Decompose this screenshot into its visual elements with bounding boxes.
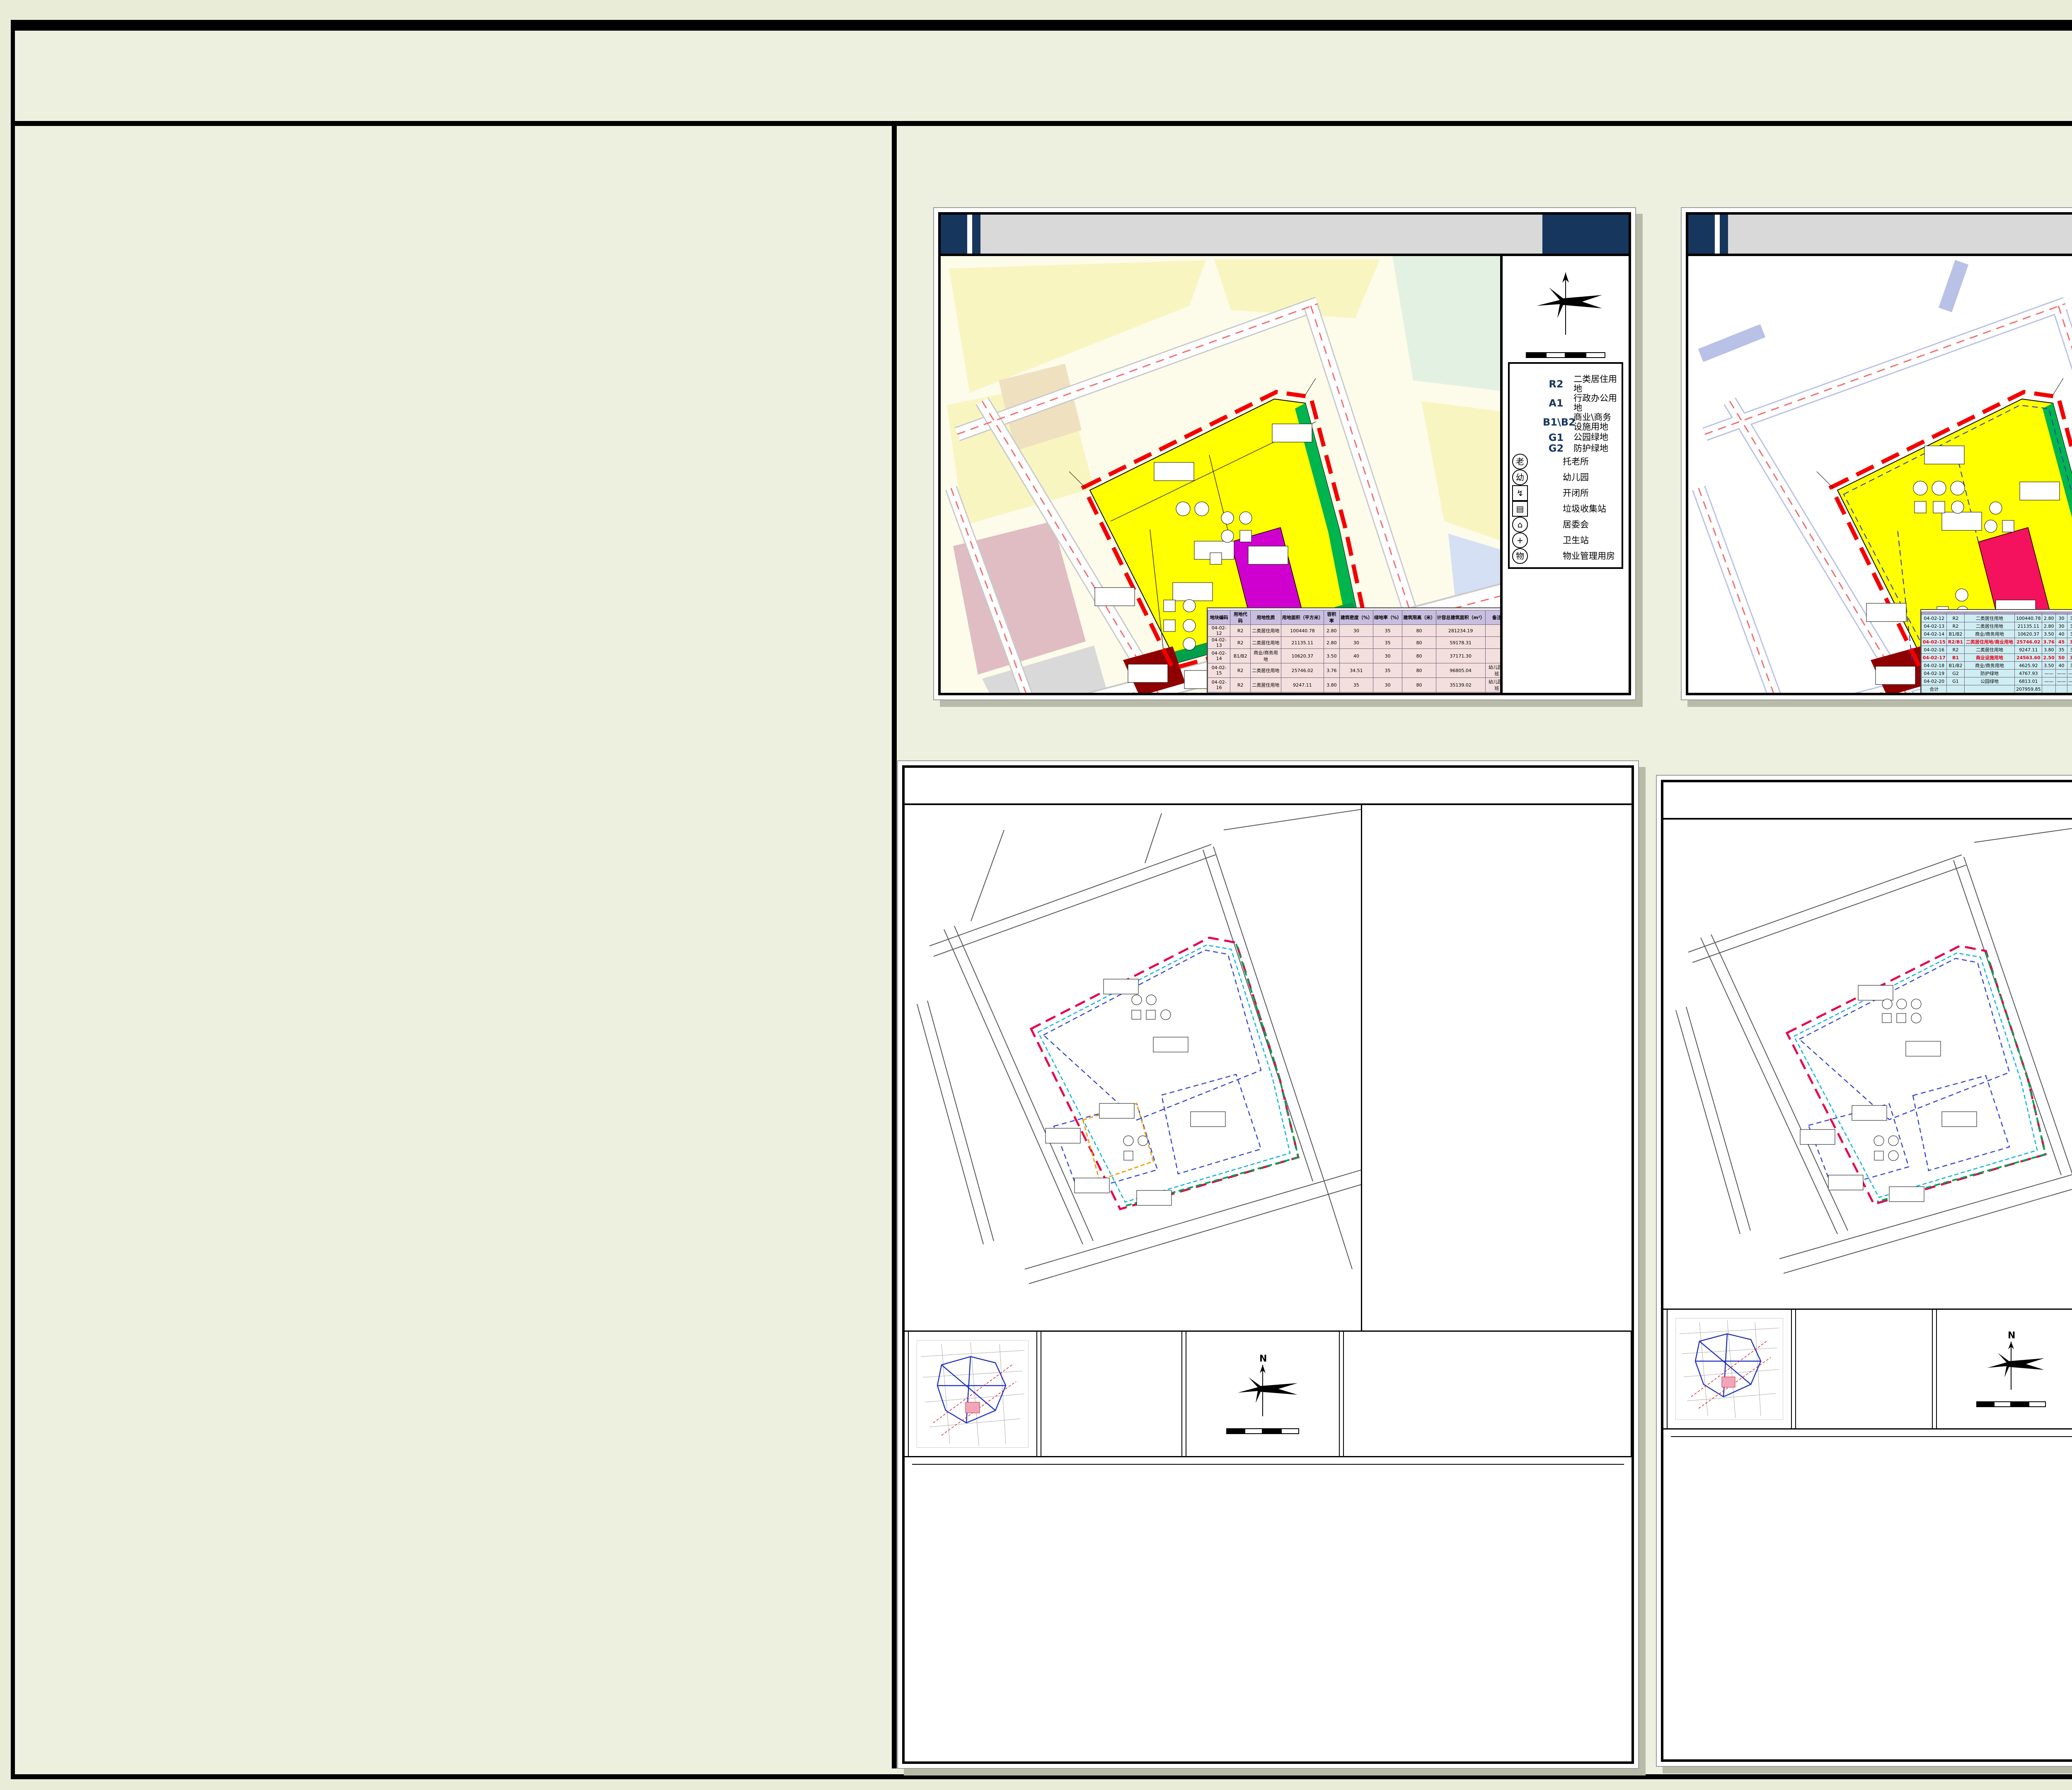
- sheet-before-notes: [905, 1461, 1631, 1468]
- legend-item: R2二类居住用地: [1512, 375, 1619, 394]
- code-cell: [1041, 1332, 1182, 1456]
- svg-text:N: N: [1259, 1354, 1267, 1364]
- legend-item: ⌂居委会: [1512, 517, 1619, 532]
- sheet-before-legend: [1344, 1332, 1631, 1456]
- legend-item: 幼幼儿园: [1512, 469, 1619, 485]
- title-divider: [11, 121, 2072, 126]
- land-use-map-after: 04-02-12R2二类居住用地100440.782.8030358028123…: [1688, 256, 2072, 693]
- location-minimap: [1668, 1310, 1792, 1428]
- compass-icon: [1526, 260, 1605, 343]
- north-scale-label: [1182, 1332, 1186, 1456]
- column-header: 建筑密度（%）: [1339, 610, 1373, 625]
- map-after-titlebar: [1688, 215, 2072, 256]
- legend-item: G1公园绿地: [1512, 432, 1619, 443]
- svg-text:N: N: [2008, 1331, 2015, 1341]
- management-sheet-after-panel: N: [1656, 775, 2072, 1767]
- legend-swatch: 物: [1512, 548, 1528, 564]
- column-header: 建筑限高（米）: [1402, 610, 1436, 625]
- land-use-map-before: 地块编码用地代码用地性质用地面积（平方米）容积率建筑密度（%）绿地率（%）建筑限…: [941, 256, 1500, 693]
- table-row: 04-02-17B1商业设施用地24563.602.5050306061409.…: [1922, 654, 2072, 662]
- legend-item: G2防护绿地: [1512, 443, 1619, 454]
- legend-swatch: 老: [1512, 454, 1528, 469]
- table-row: 04-02-12R2二类居住用地100440.782.8030358028123…: [1208, 625, 1501, 637]
- management-sheet-before-panel: N: [897, 760, 1639, 1769]
- legend-item: B1\B2商业\商务设施用地: [1512, 413, 1619, 432]
- table-row: 04-02-16R2二类居住用地9247.113.8035308035139.0…: [1208, 678, 1501, 692]
- location-map-label: [1663, 1310, 1668, 1428]
- legend-swatch: ⌂: [1512, 517, 1528, 532]
- legend-swatch: ↯: [1512, 485, 1528, 501]
- legend-item: 物物业管理用房: [1512, 548, 1619, 564]
- compass-icon: N: [1968, 1331, 2055, 1397]
- after-indicator-table: 04-02-12R2二类居住用地100440.782.8030358028123…: [1920, 609, 2072, 693]
- titlebar-block: [941, 215, 967, 254]
- table-row: 04-02-13R2二类居住用地21135.112.8030358059178.…: [1922, 622, 2072, 630]
- column-header: 绿地率（%）: [1373, 610, 1402, 625]
- legend-item: +卫生站: [1512, 532, 1619, 548]
- sheet-before-table: [905, 1456, 1631, 1461]
- code-label: [1792, 1310, 1796, 1428]
- sheet-after-strip: N: [1663, 1309, 2072, 1428]
- table-row: 合计207959.85587127.5622: [1922, 685, 2072, 693]
- table-row: 04-02-20G1公园绿地6813.01————————: [1922, 677, 2072, 685]
- table-row: 04-02-17A1行政办公用地24563.602.5035356061409.…: [1208, 692, 1501, 693]
- before-indicator-table: 地块编码用地代码用地性质用地面积（平方米）容积率建筑密度（%）绿地率（%）建筑限…: [1207, 607, 1500, 693]
- table-row: 04-02-19G2防护绿地4767.93————————: [1922, 670, 2072, 677]
- column-header: 用地面积（平方米）: [1281, 610, 1324, 625]
- scale-bar: [1526, 352, 1605, 358]
- column-header: 用地代码: [1230, 610, 1251, 625]
- table-row: 04-02-15R2/B1二类居住用地/商业用地25746.023.764535…: [1922, 638, 2072, 646]
- table-row: 04-02-13R2二类居住用地21135.112.8030358059178.…: [1208, 637, 1501, 649]
- table-row: 04-02-18B1/B2商业/商务用地4625.923.50403080161…: [1922, 662, 2072, 670]
- legend-swatch: ▤: [1512, 501, 1528, 517]
- legend-swatch: 幼: [1512, 469, 1528, 485]
- column-header: 地块编码: [1208, 610, 1230, 625]
- sheet-before-strip: N: [905, 1330, 1631, 1456]
- table-row: 04-02-12R2二类居住用地100440.782.8030358028123…: [1922, 614, 2072, 622]
- table-row: 04-02-15R2二类居住用地25746.023.7634.513580968…: [1208, 663, 1501, 678]
- column-header: 备注: [1485, 610, 1500, 625]
- map-before-sidebar: R2二类居住用地A1行政办公用地B1\B2商业\商务设施用地G1公园绿地G2防护…: [1500, 256, 1629, 693]
- location-minimap: [909, 1332, 1037, 1456]
- sheet-legend-label: [1340, 1332, 1344, 1456]
- land-use-map-before-panel: 地块编码用地代码用地性质用地面积（平方米）容积率建筑密度（%）绿地率（%）建筑限…: [933, 207, 1636, 700]
- sheet-after-table: [1663, 1428, 2072, 1433]
- north-scale-label: [1933, 1310, 1937, 1428]
- code-label: [1037, 1332, 1041, 1456]
- north-scale-cell: N: [1186, 1332, 1340, 1456]
- sheet-after-notes: [1663, 1433, 2072, 1440]
- table-row: 04-02-14B1/B2商业/商务用地10620.373.5040308037…: [1208, 649, 1501, 663]
- sheet-before-map: [905, 805, 1361, 1330]
- column-divider: [892, 121, 897, 1768]
- column-header: 用地性质: [1251, 610, 1281, 625]
- legend-item: 老托老所: [1512, 454, 1619, 469]
- location-map-label: [905, 1332, 909, 1456]
- map-before-corner-label: [1542, 215, 1629, 254]
- code-cell: [1796, 1310, 1933, 1428]
- map-before-titlebar: [941, 215, 1629, 256]
- table-row: 04-02-14B1/B2商业/商务用地10620.373.5040308037…: [1922, 630, 2072, 638]
- legend-item: ↯开闭所: [1512, 485, 1619, 501]
- sheet-after-map: [1663, 820, 2072, 1309]
- table-row: 04-02-16R2二类居住用地9247.113.8035308035139.0…: [1922, 646, 2072, 654]
- compass-icon: N: [1217, 1354, 1308, 1424]
- legend-item: A1行政办公用地: [1512, 394, 1619, 413]
- column-header: 计容总建筑面积（m²）: [1436, 610, 1485, 625]
- sheet-before-cross-sections: [1361, 805, 1631, 1330]
- land-use-map-after-panel: 04-02-12R2二类居住用地100440.782.8030358028123…: [1681, 207, 2072, 700]
- legend-item: ▤垃圾收集站: [1512, 501, 1619, 517]
- legend-swatch: +: [1512, 532, 1528, 548]
- column-header: 容积率: [1324, 610, 1339, 625]
- map-before-legend: R2二类居住用地A1行政办公用地B1\B2商业\商务设施用地G1公园绿地G2防护…: [1508, 362, 1623, 569]
- north-scale-cell: N: [1937, 1310, 2072, 1428]
